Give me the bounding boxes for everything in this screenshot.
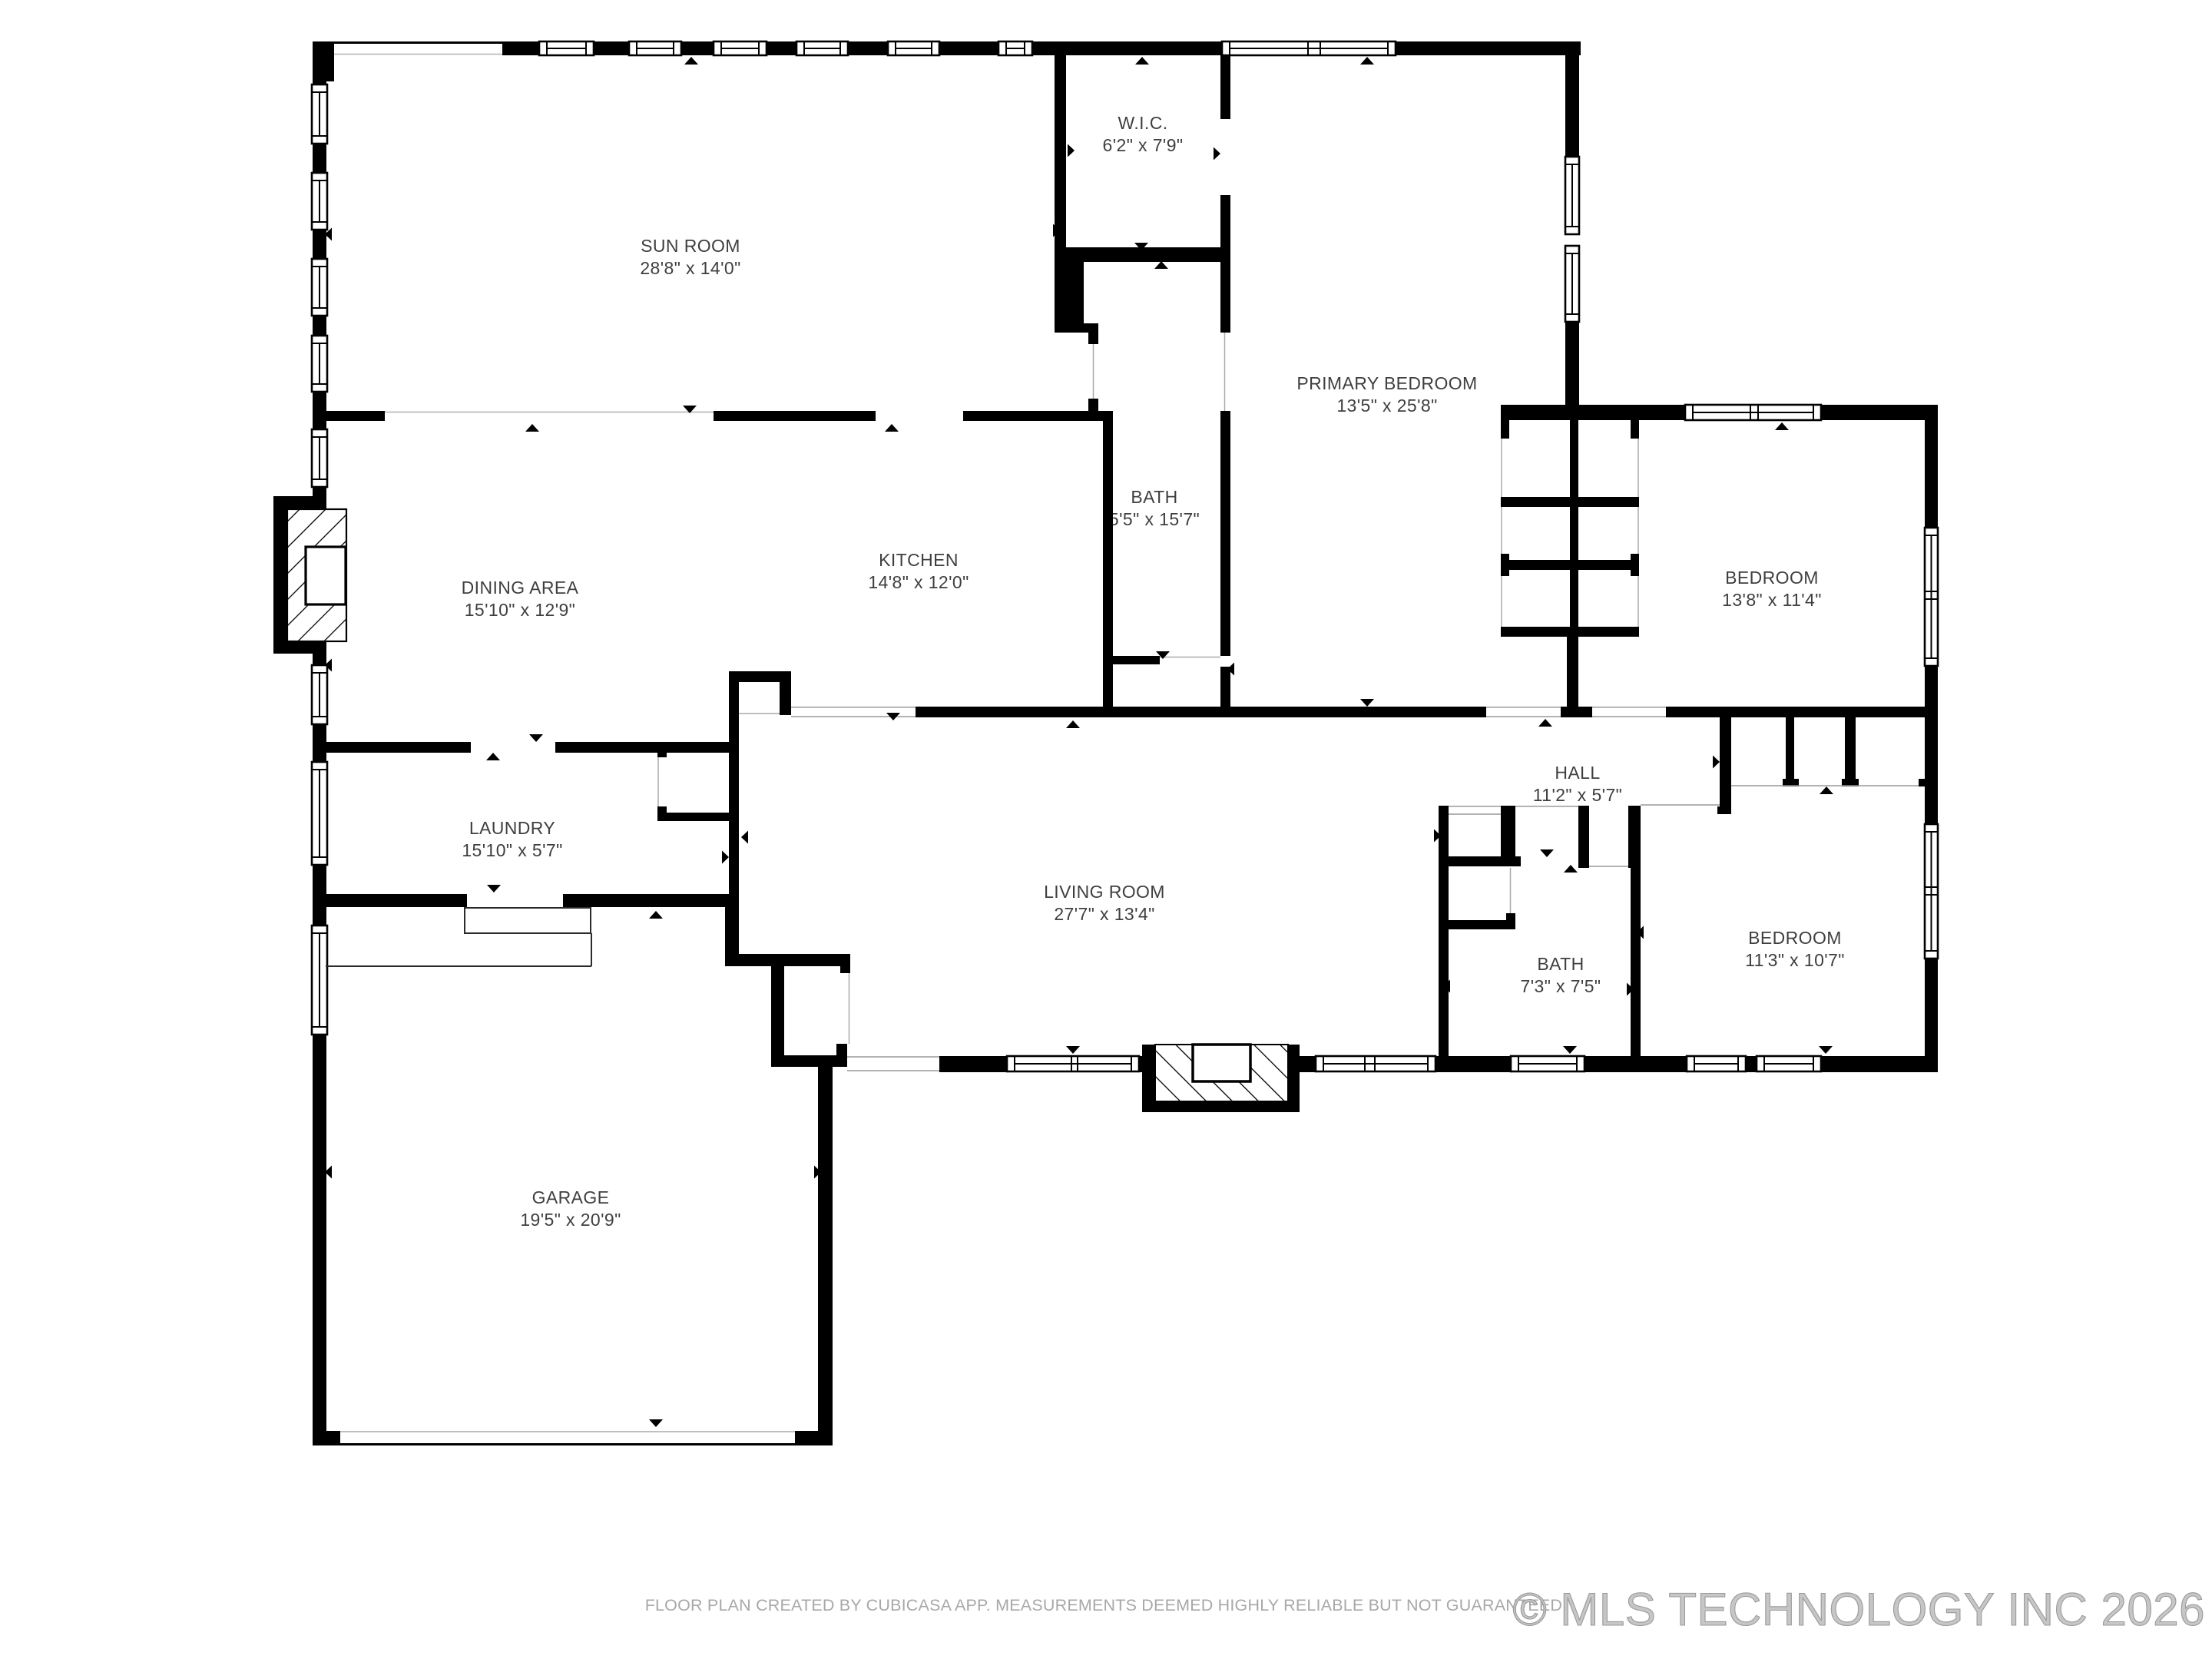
svg-text:GARAGE: GARAGE xyxy=(532,1187,610,1207)
svg-text:14'8" x 12'0": 14'8" x 12'0" xyxy=(868,572,969,592)
svg-text:BEDROOM: BEDROOM xyxy=(1725,568,1819,588)
svg-text:15'10" x 5'7": 15'10" x 5'7" xyxy=(462,840,562,860)
svg-text:LAUNDRY: LAUNDRY xyxy=(469,818,555,838)
svg-text:SUN ROOM: SUN ROOM xyxy=(641,236,740,256)
svg-text:© MLS TECHNOLOGY INC 2026: © MLS TECHNOLOGY INC 2026 xyxy=(1513,1584,2205,1635)
svg-text:11'3" x 10'7": 11'3" x 10'7" xyxy=(1745,950,1845,970)
svg-text:27'7" x 13'4": 27'7" x 13'4" xyxy=(1054,904,1154,924)
svg-text:19'5" x 20'9": 19'5" x 20'9" xyxy=(520,1210,621,1230)
svg-text:BATH: BATH xyxy=(1131,487,1177,507)
svg-text:13'5" x 25'8": 13'5" x 25'8" xyxy=(1336,396,1437,416)
svg-text:7'3" x 7'5": 7'3" x 7'5" xyxy=(1521,976,1601,996)
svg-text:W.I.C.: W.I.C. xyxy=(1118,113,1167,133)
svg-text:5'5" x 15'7": 5'5" x 15'7" xyxy=(1109,509,1200,529)
svg-text:BATH: BATH xyxy=(1537,954,1584,974)
svg-text:6'2" x 7'9": 6'2" x 7'9" xyxy=(1103,135,1184,155)
svg-text:LIVING ROOM: LIVING ROOM xyxy=(1044,882,1165,902)
svg-text:BEDROOM: BEDROOM xyxy=(1748,928,1842,948)
svg-text:PRIMARY BEDROOM: PRIMARY BEDROOM xyxy=(1296,373,1477,393)
svg-text:11'2" x 5'7": 11'2" x 5'7" xyxy=(1533,785,1622,805)
svg-text:28'8" x 14'0": 28'8" x 14'0" xyxy=(640,258,740,278)
svg-text:DINING AREA: DINING AREA xyxy=(462,578,579,598)
svg-text:HALL: HALL xyxy=(1555,763,1600,783)
svg-text:KITCHEN: KITCHEN xyxy=(879,550,959,570)
svg-text:FLOOR PLAN CREATED BY CUBICASA: FLOOR PLAN CREATED BY CUBICASA APP. MEAS… xyxy=(645,1596,1568,1614)
svg-text:15'10" x 12'9": 15'10" x 12'9" xyxy=(465,600,576,620)
svg-text:13'8" x 11'4": 13'8" x 11'4" xyxy=(1722,590,1822,610)
